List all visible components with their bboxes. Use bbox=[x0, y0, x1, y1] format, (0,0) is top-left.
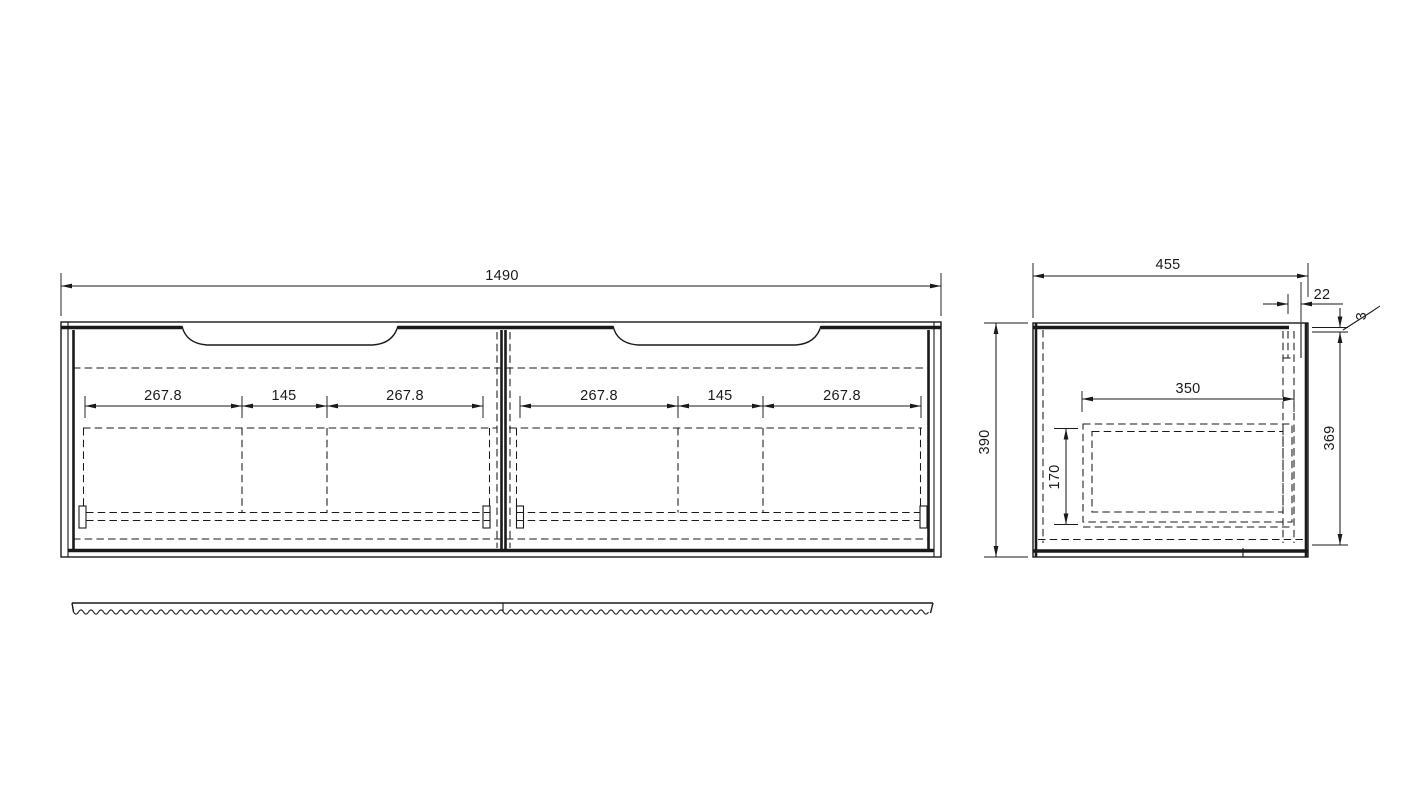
dim-label-1490: 1490 bbox=[485, 268, 518, 284]
slide-bracket bbox=[920, 506, 927, 528]
dim-label-267-8: 267.8 bbox=[823, 388, 861, 404]
dim-label-145: 145 bbox=[707, 388, 732, 404]
technical-drawing-canvas: 1490 267.8 145 267.8 267.8 145 267.8 bbox=[0, 0, 1401, 788]
dim-label-267-8: 267.8 bbox=[386, 388, 424, 404]
hidden-drawer-box-inner bbox=[1092, 432, 1283, 513]
dim-reveal-gap: 3 bbox=[1312, 306, 1380, 332]
side-view: 455 22 3 369 390 bbox=[977, 257, 1380, 557]
dim-drawer-height: 170 bbox=[1047, 429, 1078, 525]
dim-inner-height: 369 bbox=[1312, 332, 1348, 545]
dim-label-390: 390 bbox=[977, 429, 993, 454]
left-drawer-hidden-box bbox=[83, 428, 497, 521]
plan-view-fluted-strip bbox=[72, 603, 933, 614]
dim-panel-thickness: 22 bbox=[1263, 282, 1343, 322]
dim-label-350: 350 bbox=[1175, 381, 1200, 397]
dim-label-369: 369 bbox=[1322, 425, 1338, 450]
dim-overall-height: 390 bbox=[977, 323, 1028, 557]
dim-label-170: 170 bbox=[1047, 464, 1063, 489]
fluted-wave-edge bbox=[74, 610, 929, 614]
dim-overall-depth: 455 bbox=[1033, 257, 1308, 318]
dim-label-145: 145 bbox=[271, 388, 296, 404]
right-handle-recess bbox=[613, 326, 821, 345]
dim-label-267-8: 267.8 bbox=[580, 388, 618, 404]
dim-label-22: 22 bbox=[1314, 287, 1331, 303]
dim-label-455: 455 bbox=[1155, 257, 1180, 273]
dim-overall-width: 1490 bbox=[61, 268, 941, 316]
slide-bracket bbox=[79, 506, 86, 528]
slide-bracket bbox=[483, 506, 490, 528]
right-drawer-hidden-box bbox=[509, 428, 922, 521]
dim-label-267-8: 267.8 bbox=[144, 388, 182, 404]
cabinet-drawing: 1490 267.8 145 267.8 267.8 145 267.8 bbox=[0, 0, 1401, 788]
dim-drawer-segments: 267.8 145 267.8 267.8 145 267.8 bbox=[85, 388, 921, 418]
front-view: 1490 267.8 145 267.8 267.8 145 267.8 bbox=[61, 268, 941, 557]
dim-label-3: 3 bbox=[1354, 312, 1370, 320]
hidden-drawer-box-outer bbox=[1083, 424, 1292, 522]
strip-left-end bbox=[72, 603, 74, 612]
left-handle-recess bbox=[182, 326, 398, 345]
slide-bracket bbox=[517, 506, 524, 528]
dim-drawer-depth: 350 bbox=[1082, 381, 1294, 412]
strip-right-end bbox=[931, 603, 934, 613]
